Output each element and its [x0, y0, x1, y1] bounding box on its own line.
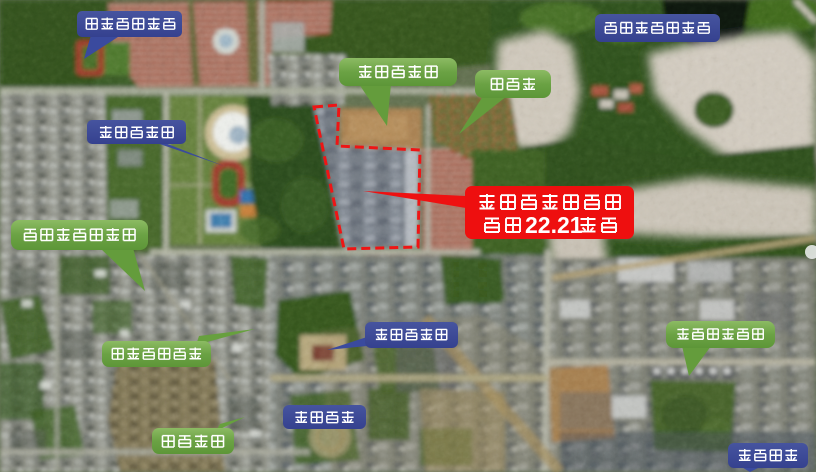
svg-text:22.21: 22.21 [525, 212, 583, 238]
